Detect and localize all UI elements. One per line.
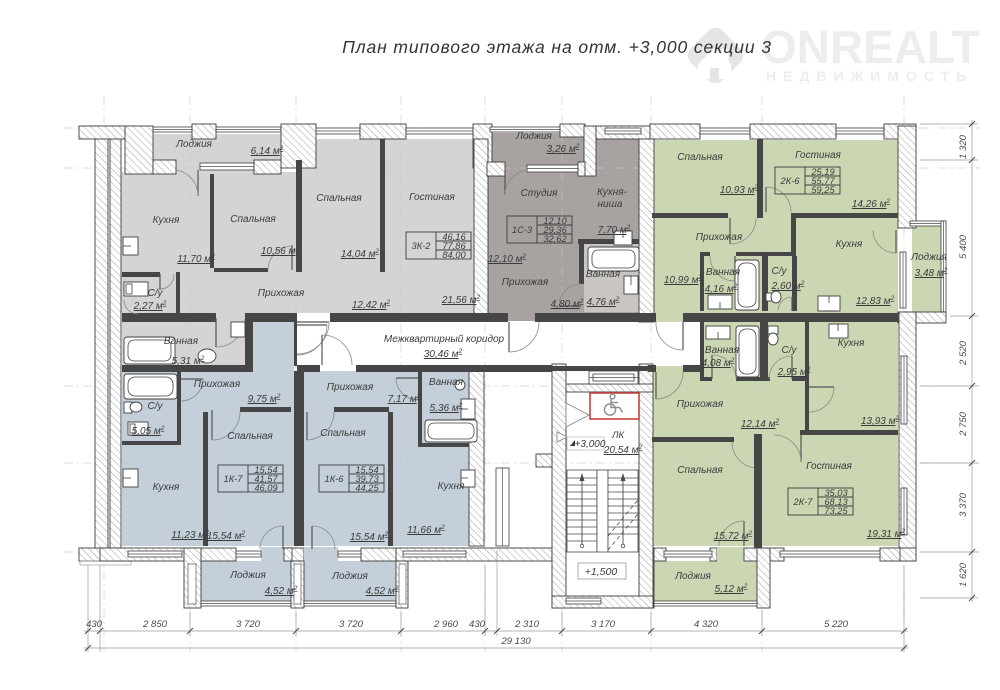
svg-text:Лоджия: Лоджия	[175, 139, 212, 150]
svg-text:32,62: 32,62	[543, 234, 567, 244]
svg-text:20,54 м2: 20,54 м2	[603, 444, 643, 456]
svg-text:11,70 м2: 11,70 м2	[177, 253, 215, 265]
svg-text:7,70 м2: 7,70 м2	[598, 224, 631, 236]
svg-text:2 310: 2 310	[514, 619, 540, 630]
svg-text:Лоджия: Лоджия	[674, 571, 711, 582]
svg-text:59,25: 59,25	[811, 185, 835, 195]
svg-text:Гостиная: Гостиная	[795, 150, 841, 161]
svg-text:Прихожая: Прихожая	[258, 288, 305, 299]
svg-text:Спальная: Спальная	[320, 428, 366, 439]
svg-text:44,25: 44,25	[355, 483, 379, 493]
svg-text:15,54 м2: 15,54 м2	[350, 531, 389, 543]
svg-text:14,04 м2: 14,04 м2	[341, 248, 380, 260]
svg-text:Лоджия: Лоджия	[331, 571, 368, 582]
svg-text:НЕДВИЖИМОСТЬ: НЕДВИЖИМОСТЬ	[766, 68, 973, 84]
svg-text:Кухня: Кухня	[153, 482, 180, 493]
svg-text:1 320: 1 320	[958, 134, 969, 159]
svg-text:Спальная: Спальная	[316, 193, 362, 204]
svg-text:2 750: 2 750	[958, 411, 969, 437]
svg-text:Спальная: Спальная	[677, 152, 723, 163]
svg-text:5,12 м2: 5,12 м2	[715, 583, 748, 595]
svg-text:2 960: 2 960	[433, 619, 459, 630]
svg-text:46,09: 46,09	[254, 483, 277, 493]
svg-text:19,31 м2: 19,31 м2	[867, 528, 906, 540]
svg-text:С/у: С/у	[148, 401, 164, 412]
svg-text:Спальная: Спальная	[677, 465, 723, 476]
svg-text:430: 430	[469, 619, 486, 630]
svg-text:3 370: 3 370	[958, 492, 969, 517]
svg-text:ЛК: ЛК	[611, 430, 626, 441]
svg-text:Кухня: Кухня	[838, 338, 865, 349]
svg-text:12,42 м2: 12,42 м2	[352, 299, 391, 311]
svg-text:2,27 м2: 2,27 м2	[133, 300, 167, 312]
svg-text:10,93 м2: 10,93 м2	[720, 184, 759, 196]
svg-text:3 720: 3 720	[339, 619, 364, 630]
svg-text:Ванная: Ванная	[586, 269, 621, 280]
svg-text:Межквартирный коридор: Межквартирный коридор	[384, 334, 505, 345]
svg-text:3К-2: 3К-2	[412, 241, 432, 251]
svg-text:5,05 м2: 5,05 м2	[132, 425, 165, 437]
svg-text:15,54 м2: 15,54 м2	[207, 530, 246, 542]
svg-text:2,60 м2: 2,60 м2	[771, 280, 805, 292]
svg-text:2 520: 2 520	[958, 340, 969, 366]
svg-text:9,75 м2: 9,75 м2	[248, 393, 281, 405]
svg-text:5,31 м2: 5,31 м2	[172, 355, 205, 367]
svg-text:3,26 м2: 3,26 м2	[547, 143, 580, 155]
svg-text:Ванная: Ванная	[705, 345, 740, 356]
svg-text:73,25: 73,25	[824, 506, 848, 516]
svg-text:Прихожая: Прихожая	[327, 382, 374, 393]
svg-text:21,56 м2: 21,56 м2	[441, 294, 481, 306]
svg-text:4,08 м2: 4,08 м2	[702, 357, 735, 369]
svg-text:ниша: ниша	[598, 199, 623, 210]
svg-text:10,56 м2: 10,56 м2	[261, 245, 300, 257]
svg-text:Ванная: Ванная	[164, 336, 199, 347]
svg-text:Ванная: Ванная	[429, 377, 464, 388]
svg-text:Студия: Студия	[521, 188, 558, 199]
svg-text:2 850: 2 850	[142, 619, 168, 630]
svg-text:2,95 м2: 2,95 м2	[777, 366, 811, 378]
svg-text:3 720: 3 720	[236, 619, 261, 630]
svg-text:Лоджия: Лоджия	[515, 131, 552, 142]
svg-text:6,14 м2: 6,14 м2	[251, 145, 284, 157]
svg-text:4,52 м2: 4,52 м2	[265, 585, 298, 597]
svg-text:3 170: 3 170	[591, 619, 616, 630]
svg-text:Гостиная: Гостиная	[409, 192, 455, 203]
svg-text:Кухня: Кухня	[836, 239, 863, 250]
svg-text:План типового этажа на отм. +3: План типового этажа на отм. +3,000 секци…	[342, 37, 772, 57]
svg-text:Прихожая: Прихожая	[502, 277, 549, 288]
svg-text:12,83 м2: 12,83 м2	[856, 295, 895, 307]
svg-text:+1,500: +1,500	[585, 566, 618, 578]
svg-text:13,93 м2: 13,93 м2	[861, 415, 900, 427]
svg-text:11,66 м2: 11,66 м2	[407, 524, 445, 536]
svg-text:+3,000: +3,000	[575, 439, 606, 450]
svg-text:14,26 м2: 14,26 м2	[852, 198, 891, 210]
svg-text:Прихожая: Прихожая	[696, 232, 743, 243]
svg-text:Прихожая: Прихожая	[677, 399, 724, 410]
svg-text:Кухня: Кухня	[438, 481, 465, 492]
svg-text:Кухня: Кухня	[153, 215, 180, 226]
svg-text:4,52 м2: 4,52 м2	[366, 585, 399, 597]
svg-text:29 130: 29 130	[500, 636, 531, 647]
svg-text:12,10 м2: 12,10 м2	[488, 253, 527, 265]
svg-text:1С-3: 1С-3	[512, 225, 533, 235]
svg-text:4,16 м2: 4,16 м2	[705, 283, 738, 295]
svg-text:4,80 м2: 4,80 м2	[551, 298, 584, 310]
svg-text:Ванная: Ванная	[706, 267, 741, 278]
svg-text:5 220: 5 220	[824, 619, 849, 630]
svg-text:Лоджия: Лоджия	[229, 570, 266, 581]
svg-text:Спальная: Спальная	[227, 431, 273, 442]
svg-text:10,99 м2: 10,99 м2	[664, 274, 703, 286]
svg-text:1К-6: 1К-6	[325, 474, 345, 484]
svg-text:4,76 м2: 4,76 м2	[587, 296, 620, 308]
svg-text:84,00: 84,00	[442, 250, 466, 260]
svg-text:1К-7: 1К-7	[224, 474, 244, 484]
svg-text:3,48 м2: 3,48 м2	[915, 267, 948, 279]
svg-text:Спальная: Спальная	[230, 214, 276, 225]
svg-text:7,17 м2: 7,17 м2	[388, 393, 421, 405]
svg-text:430: 430	[86, 619, 103, 630]
svg-text:Лоджия: Лоджия	[910, 252, 947, 263]
svg-text:12,14 м2: 12,14 м2	[741, 418, 780, 430]
svg-text:Гостиная: Гостиная	[806, 461, 852, 472]
svg-text:2К-6: 2К-6	[780, 176, 801, 186]
svg-text:4 320: 4 320	[694, 619, 719, 630]
svg-text:2К-7: 2К-7	[793, 497, 814, 507]
svg-text:5 400: 5 400	[958, 234, 969, 259]
svg-text:Прихожая: Прихожая	[194, 379, 241, 390]
svg-text:ONREALT: ONREALT	[761, 21, 980, 73]
svg-text:5,36 м2: 5,36 м2	[430, 402, 463, 414]
svg-text:1 620: 1 620	[958, 562, 969, 587]
svg-text:Кухня-: Кухня-	[597, 187, 628, 198]
svg-text:С/у: С/у	[148, 288, 164, 299]
svg-text:30,46 м2: 30,46 м2	[424, 348, 463, 360]
svg-text:15,72 м2: 15,72 м2	[714, 530, 753, 542]
svg-text:11,23 м2: 11,23 м2	[171, 529, 209, 541]
svg-text:С/у: С/у	[772, 266, 788, 277]
svg-text:С/у: С/у	[782, 345, 798, 356]
